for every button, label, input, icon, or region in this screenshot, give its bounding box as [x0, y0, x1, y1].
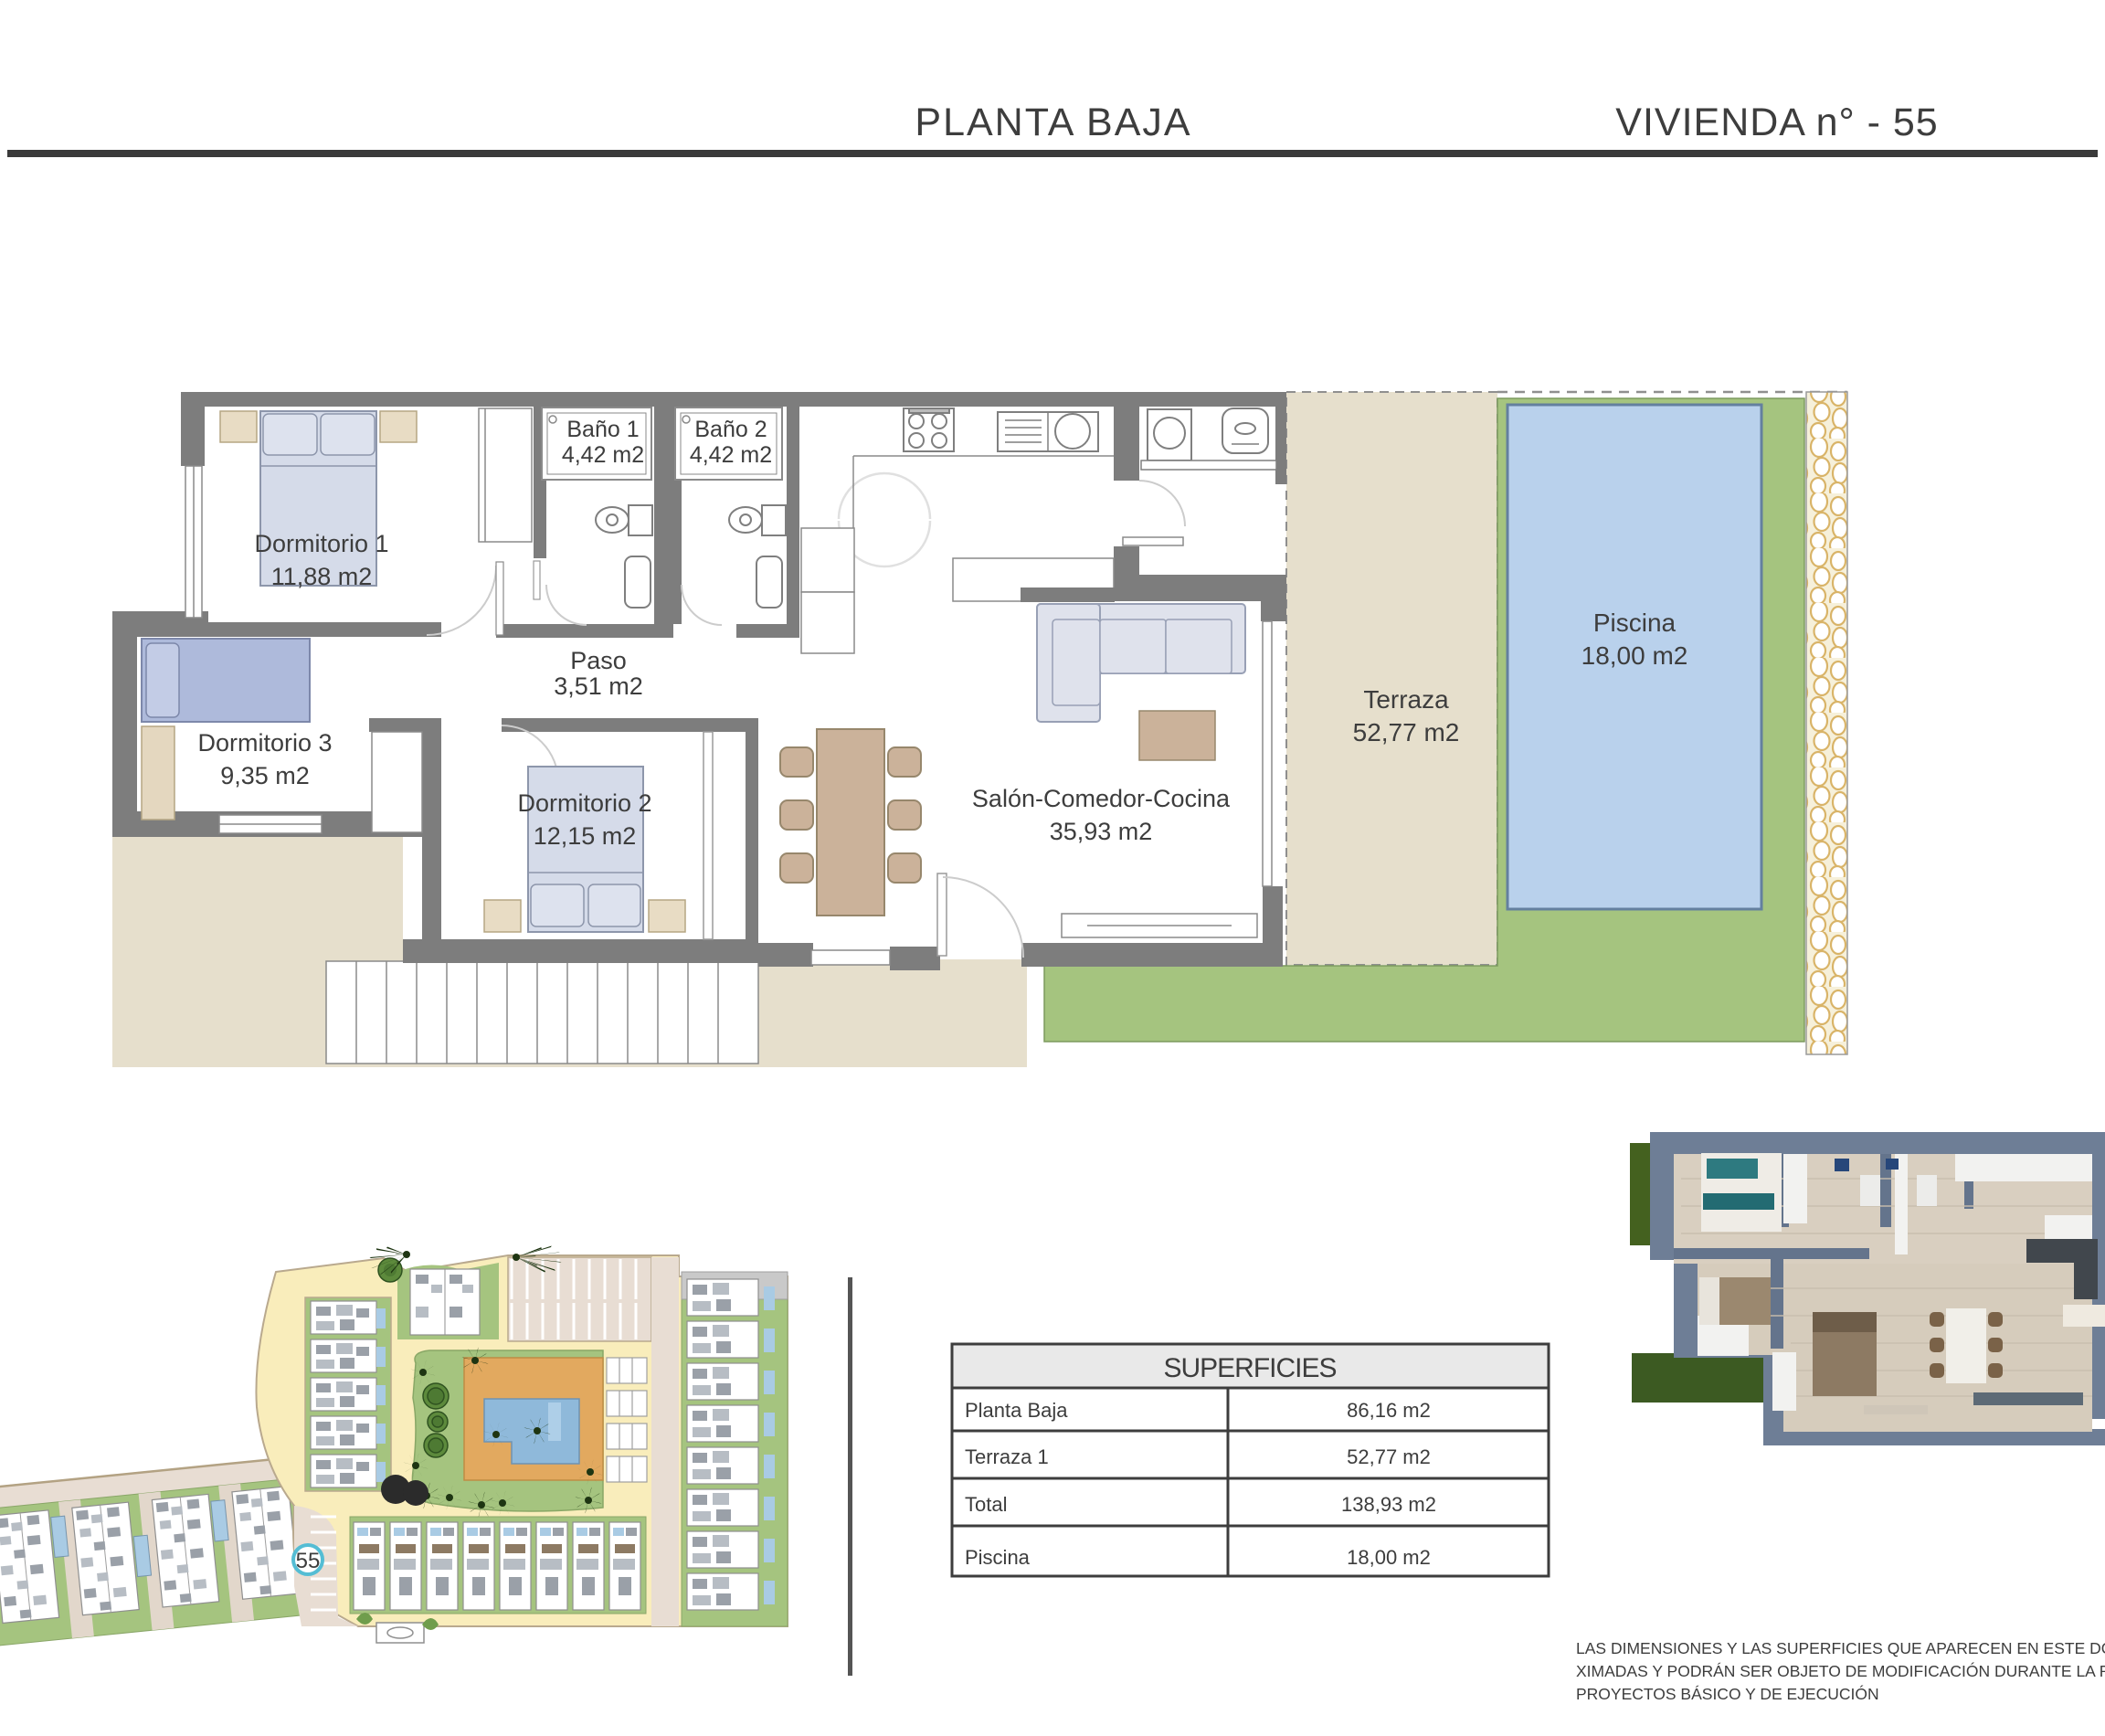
- svg-text:Planta Baja: Planta Baja: [965, 1399, 1068, 1422]
- svg-text:LAS DIMENSIONES Y LAS SUPERFIC: LAS DIMENSIONES Y LAS SUPERFICIES QUE AP…: [1576, 1639, 2105, 1657]
- svg-text:52,77 m2: 52,77 m2: [1347, 1445, 1431, 1468]
- svg-text:9,35 m2: 9,35 m2: [220, 762, 310, 789]
- svg-text:18,00 m2: 18,00 m2: [1347, 1546, 1431, 1569]
- svg-text:86,16 m2: 86,16 m2: [1347, 1399, 1431, 1422]
- svg-text:12,15 m2: 12,15 m2: [534, 822, 637, 850]
- svg-text:Baño 2: Baño 2: [694, 417, 767, 442]
- svg-text:Dormitorio 3: Dormitorio 3: [197, 729, 332, 757]
- svg-text:4,42 m2: 4,42 m2: [562, 442, 644, 468]
- svg-text:Dormitorio 2: Dormitorio 2: [517, 789, 651, 817]
- svg-text:52,77 m2: 52,77 m2: [1353, 718, 1460, 746]
- svg-text:PROYECTOS BÁSICO Y DE EJECUCIÓ: PROYECTOS BÁSICO Y DE EJECUCIÓN: [1576, 1684, 1879, 1703]
- svg-text:Total: Total: [965, 1493, 1007, 1516]
- svg-text:Terraza: Terraza: [1363, 685, 1449, 714]
- svg-text:138,93 m2: 138,93 m2: [1341, 1493, 1436, 1516]
- svg-text:35,93 m2: 35,93 m2: [1050, 818, 1153, 845]
- svg-text:Dormitorio 1: Dormitorio 1: [254, 530, 388, 557]
- svg-text:4,42 m2: 4,42 m2: [690, 442, 772, 468]
- svg-text:55: 55: [296, 1549, 321, 1573]
- svg-text:Piscina: Piscina: [965, 1546, 1031, 1569]
- svg-text:Piscina: Piscina: [1593, 609, 1677, 637]
- svg-text:PLANTA BAJA: PLANTA BAJA: [915, 101, 1191, 144]
- svg-text:Paso: Paso: [570, 647, 627, 674]
- svg-text:3,51 m2: 3,51 m2: [554, 672, 643, 700]
- svg-text:11,88 m2: 11,88 m2: [271, 563, 373, 590]
- svg-text:18,00 m2: 18,00 m2: [1581, 641, 1688, 670]
- svg-text:Terraza 1: Terraza 1: [965, 1445, 1049, 1468]
- svg-text:XIMADAS Y PODRÁN SER OBJETO DE: XIMADAS Y PODRÁN SER OBJETO DE MODIFICAC…: [1576, 1661, 2105, 1680]
- svg-text:VIVIENDA n° - 55: VIVIENDA n° - 55: [1615, 101, 1938, 144]
- svg-text:SUPERFICIES: SUPERFICIES: [1163, 1353, 1336, 1383]
- svg-text:Salón-Comedor-Cocina: Salón-Comedor-Cocina: [972, 785, 1231, 812]
- svg-text:Baño 1: Baño 1: [566, 417, 639, 442]
